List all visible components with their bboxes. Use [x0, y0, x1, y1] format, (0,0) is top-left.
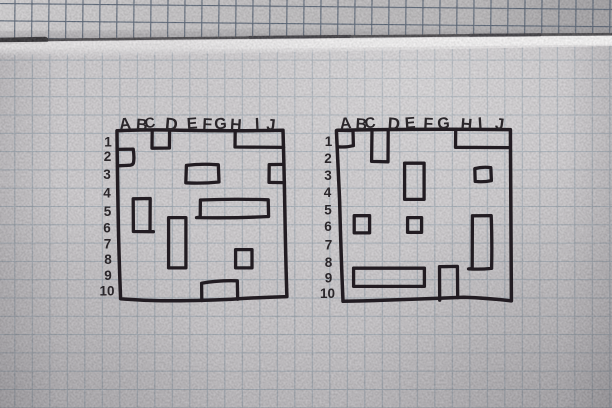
svg-text:F: F — [202, 116, 213, 134]
svg-text:5: 5 — [104, 204, 112, 219]
svg-text:7: 7 — [104, 237, 112, 252]
svg-text:G: G — [437, 115, 451, 133]
svg-text:F: F — [423, 116, 434, 134]
svg-text:6: 6 — [324, 219, 332, 234]
svg-text:4: 4 — [324, 185, 332, 200]
svg-text:E: E — [404, 115, 416, 133]
svg-text:8: 8 — [104, 252, 112, 267]
svg-text:J: J — [266, 117, 277, 135]
svg-text:2: 2 — [104, 149, 112, 164]
svg-text:5: 5 — [324, 203, 332, 218]
svg-text:D: D — [164, 114, 178, 135]
svg-text:10: 10 — [99, 284, 114, 299]
svg-text:1: 1 — [325, 134, 333, 149]
svg-text:A: A — [118, 115, 132, 133]
svg-text:8: 8 — [325, 255, 333, 270]
svg-text:I: I — [255, 116, 260, 133]
svg-text:9: 9 — [325, 271, 333, 286]
svg-text:9: 9 — [104, 268, 112, 283]
svg-text:D: D — [387, 114, 401, 134]
svg-text:4: 4 — [103, 186, 111, 201]
svg-text:G: G — [214, 115, 228, 133]
svg-text:E: E — [186, 115, 198, 133]
svg-text:A: A — [339, 115, 352, 133]
svg-text:H: H — [229, 117, 242, 135]
svg-text:1: 1 — [104, 135, 112, 150]
svg-text:6: 6 — [103, 221, 111, 236]
svg-text:3: 3 — [103, 167, 111, 182]
svg-text:10: 10 — [320, 286, 335, 301]
svg-text:3: 3 — [324, 168, 332, 183]
svg-text:7: 7 — [325, 238, 333, 253]
svg-text:2: 2 — [324, 151, 332, 166]
svg-text:H: H — [460, 116, 473, 134]
